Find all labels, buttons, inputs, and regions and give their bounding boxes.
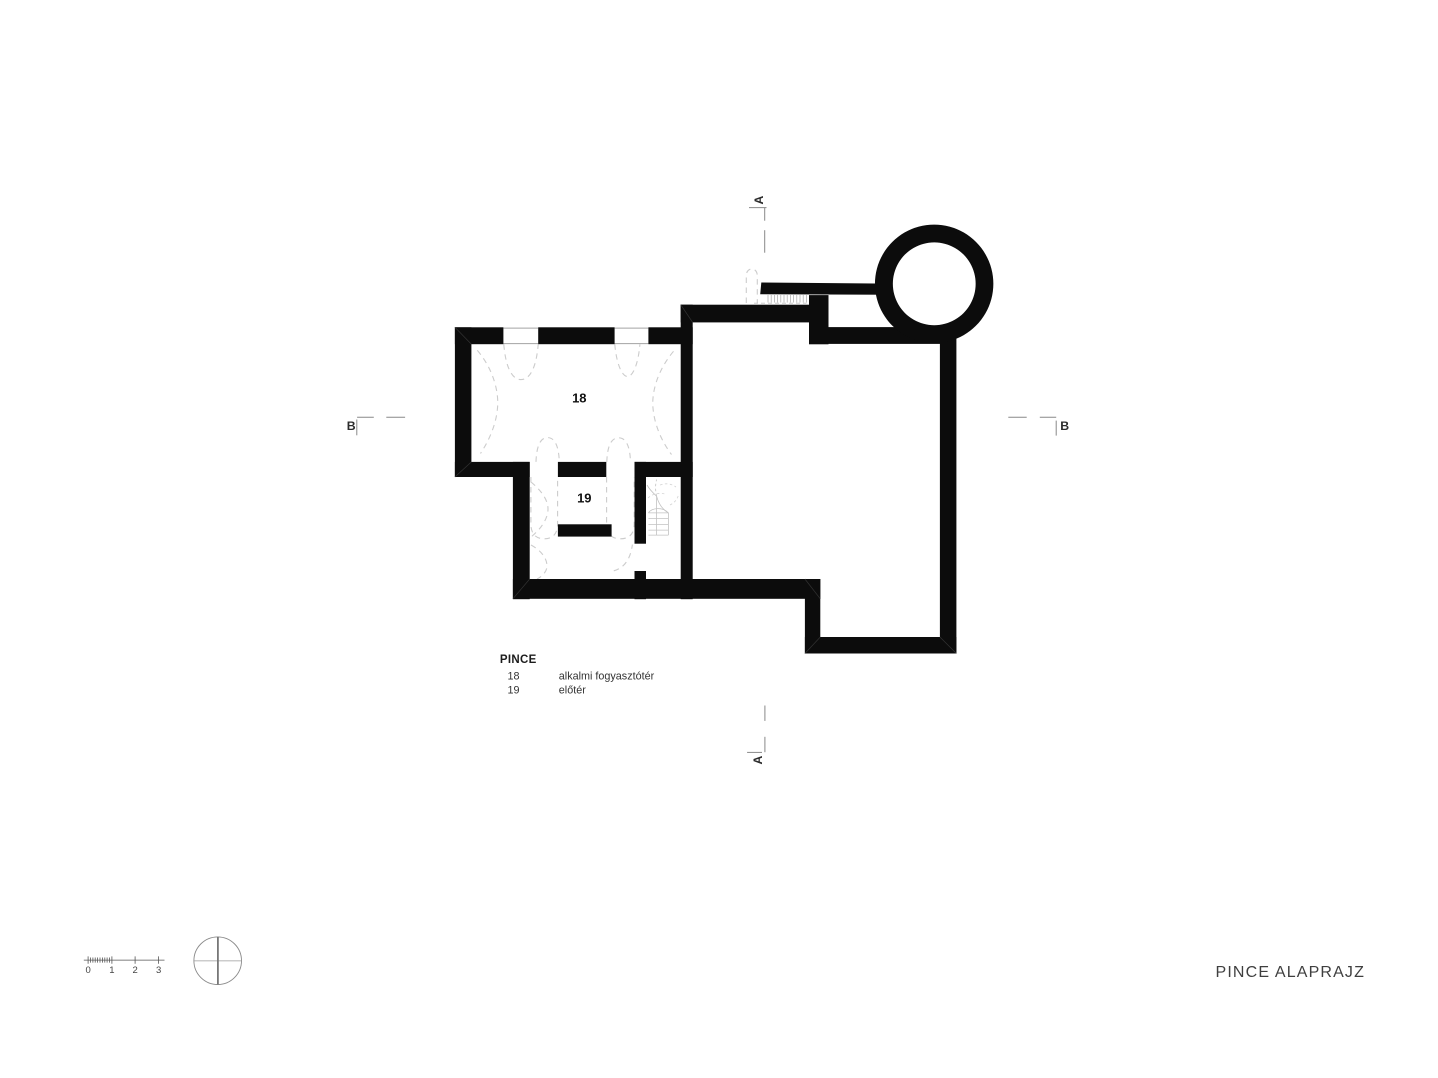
svg-text:PINCE: PINCE [500, 654, 537, 666]
svg-text:A: A [752, 195, 766, 204]
svg-text:PINCE ALAPRAJZ: PINCE ALAPRAJZ [1216, 964, 1365, 981]
svg-text:3: 3 [156, 965, 161, 976]
svg-text:19: 19 [577, 491, 591, 506]
svg-text:A: A [751, 755, 765, 764]
svg-text:B: B [1060, 419, 1069, 433]
svg-text:18: 18 [572, 390, 586, 405]
svg-text:0: 0 [85, 965, 90, 976]
svg-text:B: B [347, 419, 356, 433]
svg-text:2: 2 [132, 965, 137, 976]
svg-text:1: 1 [109, 965, 114, 976]
svg-text:18: 18 [508, 671, 520, 683]
svg-text:alkalmi fogyasztótér: alkalmi fogyasztótér [559, 671, 655, 683]
svg-text:19: 19 [508, 685, 520, 697]
svg-text:előtér: előtér [559, 685, 586, 697]
